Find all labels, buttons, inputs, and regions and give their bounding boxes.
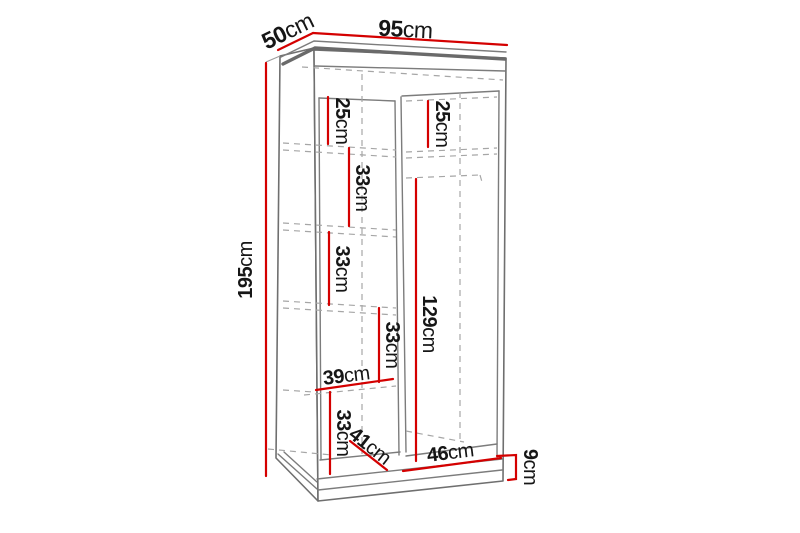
label-129: 129cm: [418, 295, 440, 353]
wardrobe-drawing: [266, 41, 506, 501]
extension-tick-top: [266, 56, 280, 62]
label-33-b: 33cm: [331, 246, 353, 293]
label-depth-50: 50cm: [257, 7, 317, 54]
label-height-195: 195cm: [235, 241, 257, 299]
label-33-c: 33cm: [381, 322, 403, 369]
wardrobe-diagram-canvas: 50cm 95cm 195cm 25cm 25cm 33cm 33cm 33cm…: [0, 0, 800, 533]
side-panel: [276, 48, 318, 501]
label-33-a: 33cm: [351, 165, 373, 212]
label-25-right: 25cm: [431, 101, 453, 148]
label-9: 9cm: [519, 449, 541, 485]
product-dimension-diagram: 50cm 95cm 195cm 25cm 25cm 33cm 33cm 33cm…: [0, 0, 800, 533]
label-25-left: 25cm: [331, 98, 353, 145]
label-width-95: 95cm: [378, 15, 434, 44]
